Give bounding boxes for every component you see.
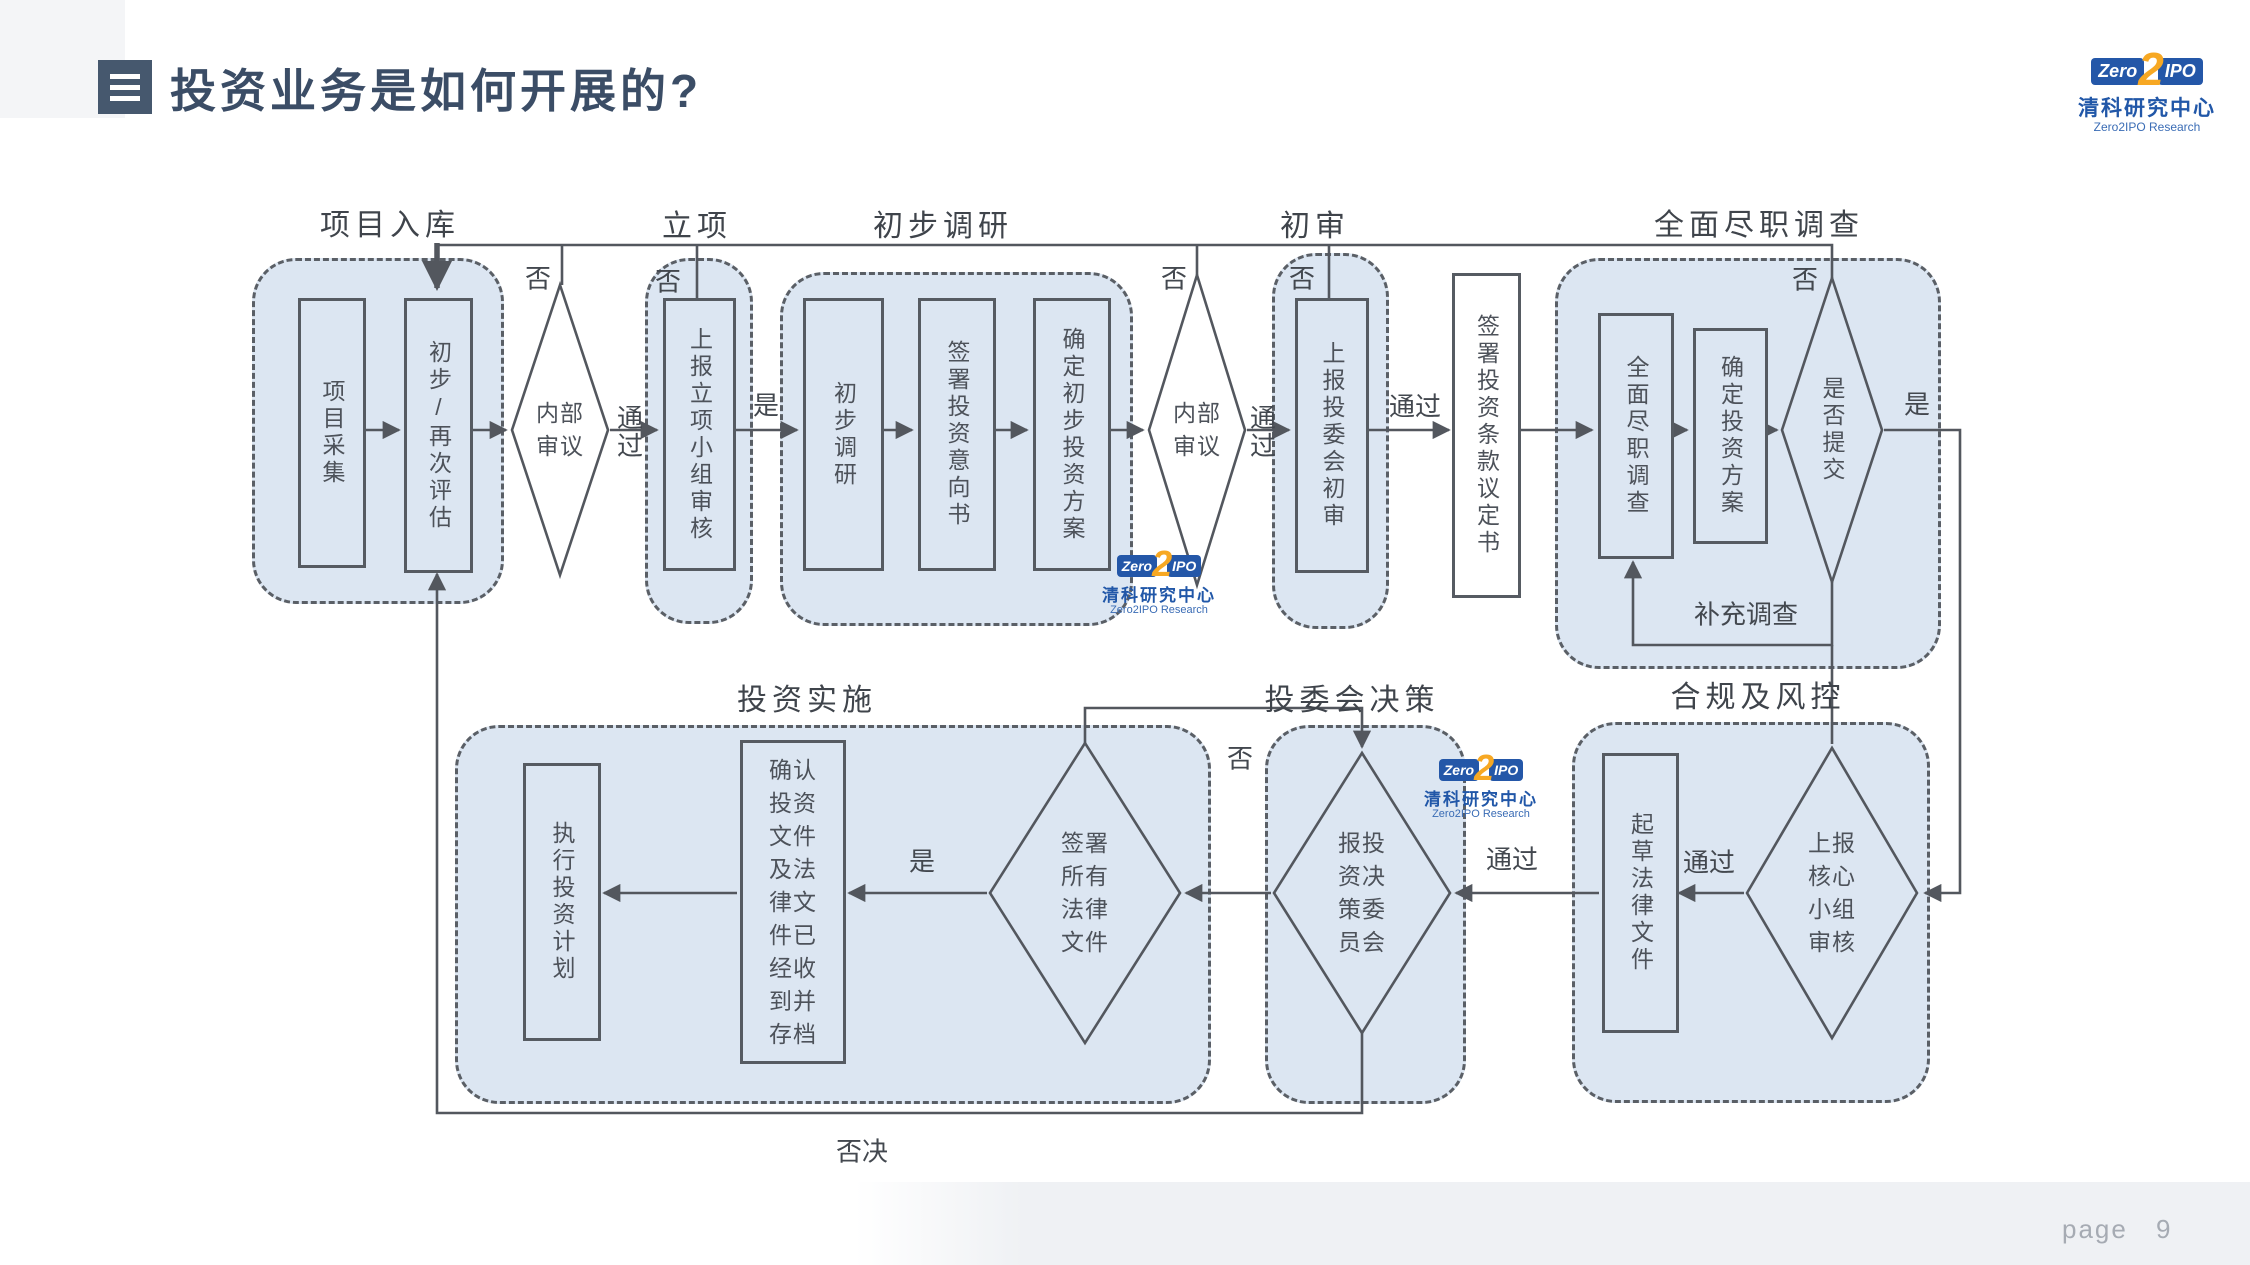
edge-label-supplementary: 补充调查: [1694, 595, 1798, 632]
node-project-collection: 项目采集: [298, 298, 366, 568]
node-sign-loi-label: 签署投资意向书: [940, 340, 974, 529]
edge-label-pass-5: 通过: [1683, 843, 1735, 880]
watermark-top-ipo-box: IPO: [1167, 555, 1201, 577]
diamond-label-sign-all-legal-text: 签署所有法律文件: [1059, 827, 1111, 959]
node-report-project-team-label: 上报立项小组审核: [683, 327, 717, 543]
watermark-top-logo-row: Zero 2 IPO: [1117, 548, 1202, 584]
node-preliminary-plan: 确定初步投资方案: [1033, 298, 1111, 571]
diamond-label-decision-committee: 报投资决策委员会: [1336, 827, 1388, 959]
node-sign-term-sheet: 签署投资条款议定书: [1452, 273, 1521, 598]
edge-label-pass-3: 通过: [1389, 387, 1441, 424]
edge-label-no-bottom: 否: [1227, 739, 1253, 776]
watermark-bottom-two: 2: [1474, 750, 1494, 786]
edge-label-pass-2: 通过: [1244, 404, 1281, 460]
diamond-label-sign-all-legal: 签署所有法律文件: [1059, 827, 1111, 959]
edge-submit-yes-to-core-team: [1884, 430, 1960, 893]
watermark-top-name-en: Zero2IPO Research: [1110, 605, 1208, 616]
node-execute-plan-label: 执行投资计划: [545, 821, 579, 983]
section-label-compliance-risk: 合规及风控: [1671, 672, 1846, 716]
flow-connectors: [0, 0, 2250, 1265]
node-investment-plan: 确定投资方案: [1693, 328, 1768, 544]
node-initial-reassessment: 初步/再次评估: [404, 298, 473, 573]
section-label-initial-review: 初审: [1280, 201, 1350, 245]
edge-label-no-5: 否: [1792, 260, 1818, 297]
node-confirm-archive-label: 确认投资文件及法律文件已经收到并存档: [767, 754, 819, 1051]
diamond-label-internal-review-1: 内部审议: [534, 397, 586, 463]
zero2ipo-watermark-top: Zero 2 IPO 清科研究中心 Zero2IPO Research: [1102, 548, 1216, 616]
diamond-label-core-team-review-text: 上报核心小组审核: [1806, 827, 1858, 959]
diamond-label-internal-review-2-text: 内部审议: [1171, 397, 1223, 463]
watermark-top-name-cn: 清科研究中心: [1102, 587, 1216, 604]
section-label-committee-decision: 投委会决策: [1265, 675, 1440, 719]
node-preliminary-research-label: 初步调研: [827, 381, 861, 489]
watermark-bottom-name-en: Zero2IPO Research: [1432, 809, 1530, 820]
section-label-investment-execution: 投资实施: [737, 675, 877, 719]
diamond-label-internal-review-1-text: 内部审议: [534, 397, 586, 463]
node-preliminary-plan-label: 确定初步投资方案: [1055, 327, 1089, 543]
node-sign-term-sheet-label: 签署投资条款议定书: [1470, 314, 1504, 557]
edge-label-veto: 否决: [836, 1132, 888, 1169]
node-project-collection-label: 项目采集: [315, 379, 349, 487]
node-sign-loi: 签署投资意向书: [918, 298, 996, 571]
watermark-top-two: 2: [1152, 546, 1172, 582]
slide: 投资业务是如何开展的? Zero 2 IPO 清科研究中心 Zero2IPO R…: [0, 0, 2250, 1265]
diamond-label-submit-or-not-text: 是否提交: [1815, 376, 1849, 484]
section-label-due-diligence: 全面尽职调查: [1654, 200, 1864, 244]
edge-label-no-1: 否: [525, 259, 551, 296]
edge-no-return-top: [437, 245, 1832, 278]
edge-label-no-4: 否: [1289, 259, 1315, 296]
node-full-due-diligence-label: 全面尽职调查: [1619, 355, 1653, 517]
diamond-label-internal-review-2: 内部审议: [1171, 397, 1223, 463]
zero2ipo-watermark-bottom: Zero 2 IPO 清科研究中心 Zero2IPO Research: [1424, 752, 1538, 820]
edge-label-yes-2: 是: [1904, 385, 1930, 422]
node-execute-plan: 执行投资计划: [523, 763, 601, 1041]
node-ic-initial-review: 上报投委会初审: [1295, 298, 1369, 573]
section-label-project-approval: 立项: [662, 201, 732, 245]
edge-label-pass-4: 通过: [1486, 840, 1538, 877]
section-label-preliminary-research: 初步调研: [873, 201, 1013, 245]
section-label-project-intake: 项目入库: [320, 200, 460, 244]
edge-label-yes-1: 是: [753, 386, 779, 423]
node-initial-reassessment-label: 初步/再次评估: [422, 340, 456, 532]
edge-label-no-3: 否: [1161, 259, 1187, 296]
watermark-bottom-name-cn: 清科研究中心: [1424, 791, 1538, 808]
edge-label-yes-3: 是: [909, 842, 935, 879]
edge-label-pass-1: 通过: [611, 404, 648, 460]
node-draft-legal: 起草法律文件: [1602, 753, 1679, 1033]
diamond-label-decision-committee-text: 报投资决策委员会: [1336, 827, 1388, 959]
node-ic-initial-review-label: 上报投委会初审: [1315, 341, 1349, 530]
watermark-bottom-logo-row: Zero 2 IPO: [1439, 752, 1524, 788]
diamond-label-submit-or-not: 是否提交: [1815, 376, 1849, 484]
node-draft-legal-label: 起草法律文件: [1624, 812, 1658, 974]
edge-label-no-2: 否: [655, 262, 681, 299]
diamond-label-core-team-review: 上报核心小组审核: [1806, 827, 1858, 959]
node-full-due-diligence: 全面尽职调查: [1598, 313, 1674, 559]
watermark-bottom-ipo-box: IPO: [1489, 759, 1523, 781]
node-investment-plan-label: 确定投资方案: [1714, 355, 1748, 517]
node-confirm-archive: 确认投资文件及法律文件已经收到并存档: [740, 740, 846, 1064]
node-report-project-team: 上报立项小组审核: [663, 298, 736, 571]
node-preliminary-research: 初步调研: [803, 298, 884, 571]
